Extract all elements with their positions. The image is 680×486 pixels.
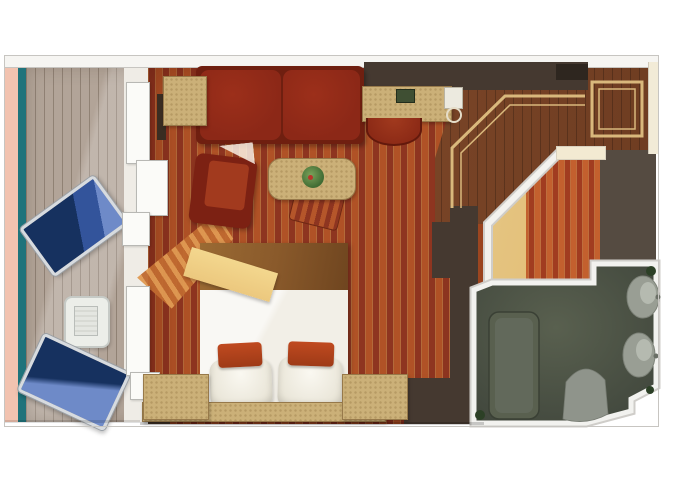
orange-pillow-left — [217, 342, 262, 368]
desk-kettle — [446, 107, 462, 123]
faucet-upper — [656, 295, 661, 300]
table-plant — [302, 166, 324, 188]
sink-lower-highlight — [636, 339, 652, 361]
door-panel — [136, 160, 168, 216]
balcony-side-table — [64, 296, 110, 348]
door-panel — [122, 212, 150, 246]
desk-box — [444, 87, 463, 109]
entry-inlay-border — [452, 82, 642, 208]
armchair — [188, 152, 258, 229]
sink-upper-highlight — [640, 282, 656, 304]
closet-angled-wall-outline — [488, 150, 562, 286]
sofa — [196, 66, 364, 144]
sofa-cushion-right — [283, 70, 360, 140]
entry-top-wall-end — [556, 64, 588, 80]
plant-corner — [646, 386, 654, 394]
desk-tv — [396, 89, 415, 103]
plant-corner — [646, 266, 656, 276]
sofa-cushion-left — [200, 70, 281, 140]
stateroom-floorplan — [0, 0, 680, 486]
bathroom — [474, 264, 661, 423]
nightstand-left — [143, 374, 209, 420]
nightstand-right — [342, 374, 408, 420]
balcony-edge-shadow — [5, 420, 140, 423]
sofa-side-table — [163, 76, 207, 126]
plant-corner — [475, 410, 485, 420]
door-panel — [126, 82, 150, 164]
bathtub-basin — [495, 318, 533, 413]
door-panel — [126, 286, 150, 376]
closet-threshold — [556, 146, 606, 160]
faucet-lower — [654, 354, 659, 359]
bottom-wall-shadow — [140, 422, 484, 425]
orange-pillow-right — [288, 341, 335, 367]
